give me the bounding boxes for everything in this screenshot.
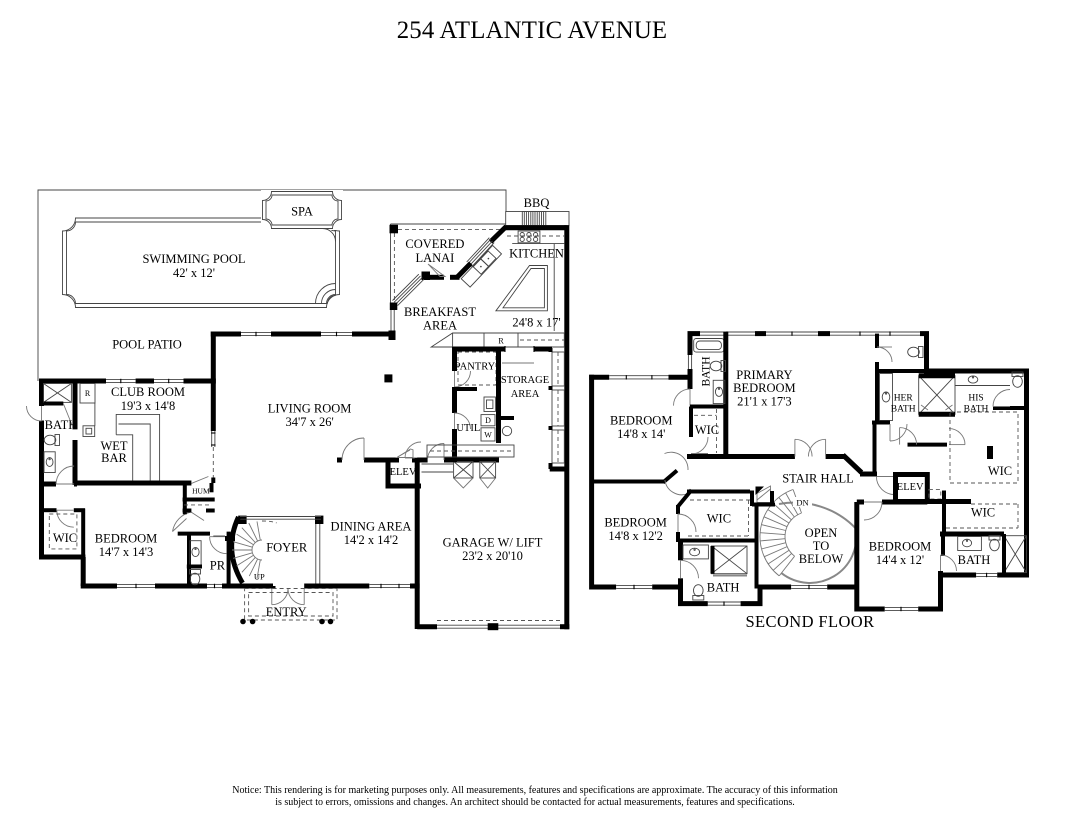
svg-text:BATH: BATH	[45, 418, 78, 432]
svg-text:CLUB ROOM: CLUB ROOM	[111, 385, 185, 399]
svg-text:BELOW: BELOW	[799, 552, 844, 566]
svg-text:PR: PR	[210, 559, 226, 573]
svg-text:is subject to errors, omission: is subject to errors, omissions and chan…	[275, 797, 795, 808]
svg-text:BREAKFAST: BREAKFAST	[404, 305, 476, 319]
svg-text:HER: HER	[894, 394, 914, 404]
svg-text:POOL PATIO: POOL PATIO	[112, 338, 182, 352]
svg-text:LIVING ROOM: LIVING ROOM	[268, 402, 352, 416]
svg-text:BEDROOM: BEDROOM	[869, 540, 932, 554]
svg-text:ENTRY: ENTRY	[266, 605, 307, 619]
svg-text:HUM: HUM	[192, 486, 210, 495]
svg-text:AREA: AREA	[423, 319, 457, 333]
svg-text:UTIL: UTIL	[456, 423, 480, 434]
svg-text:ELEV: ELEV	[897, 482, 924, 493]
svg-text:AREA: AREA	[511, 389, 540, 400]
svg-text:BATH: BATH	[891, 405, 916, 415]
svg-text:FOYER: FOYER	[266, 541, 308, 555]
svg-text:WIC: WIC	[971, 506, 995, 520]
svg-text:WIC: WIC	[988, 464, 1012, 478]
svg-text:Notice: This rendering is for: Notice: This rendering is for marketing …	[232, 785, 837, 796]
svg-text:BAR: BAR	[101, 451, 127, 465]
svg-text:SPA: SPA	[291, 205, 313, 219]
svg-text:WIC: WIC	[707, 511, 731, 525]
svg-text:BEDROOM: BEDROOM	[610, 414, 673, 428]
svg-text:ELEV: ELEV	[390, 467, 417, 478]
svg-text:TO: TO	[813, 539, 829, 553]
svg-text:BATH: BATH	[707, 581, 740, 595]
svg-text:BBQ: BBQ	[524, 196, 550, 210]
svg-text:23'2 x 20'10: 23'2 x 20'10	[462, 549, 523, 563]
svg-text:14'8 x 12'2: 14'8 x 12'2	[608, 529, 663, 543]
svg-text:DN: DN	[796, 498, 808, 508]
svg-text:BATH: BATH	[701, 356, 713, 386]
svg-text:34'7 x 26': 34'7 x 26'	[285, 415, 333, 429]
svg-text:WIC: WIC	[695, 423, 719, 437]
svg-text:STAIR HALL: STAIR HALL	[782, 472, 854, 486]
svg-text:PANTRY: PANTRY	[455, 362, 496, 373]
svg-text:42' x 12': 42' x 12'	[173, 266, 215, 280]
svg-text:D: D	[485, 416, 491, 425]
svg-text:WIC: WIC	[53, 531, 77, 545]
svg-text:BEDROOM: BEDROOM	[733, 381, 796, 395]
svg-text:PRIMARY: PRIMARY	[736, 368, 792, 382]
svg-text:14'8 x 14': 14'8 x 14'	[617, 427, 665, 441]
svg-text:14'2 x 14'2: 14'2 x 14'2	[344, 533, 399, 547]
svg-text:BEDROOM: BEDROOM	[95, 532, 158, 546]
svg-text:OPEN: OPEN	[805, 526, 838, 540]
svg-text:14'4 x 12': 14'4 x 12'	[876, 553, 924, 567]
svg-text:BEDROOM: BEDROOM	[604, 515, 667, 529]
svg-text:UP: UP	[254, 572, 265, 582]
svg-text:STORAGE: STORAGE	[501, 375, 549, 386]
svg-text:DINING AREA: DINING AREA	[331, 520, 412, 534]
svg-text:GARAGE W/ LIFT: GARAGE W/ LIFT	[443, 536, 543, 550]
svg-text:24'8 x 17': 24'8 x 17'	[512, 316, 560, 330]
svg-text:SWIMMING POOL: SWIMMING POOL	[142, 252, 245, 266]
svg-text:W: W	[484, 431, 492, 440]
svg-text:COVERED: COVERED	[405, 237, 464, 251]
svg-text:KITCHEN: KITCHEN	[509, 247, 564, 261]
svg-text:21'1 x 17'3: 21'1 x 17'3	[737, 395, 792, 409]
svg-text:14'7 x 14'3: 14'7 x 14'3	[99, 545, 154, 559]
svg-text:BATH: BATH	[964, 405, 989, 415]
svg-text:R: R	[85, 389, 91, 398]
svg-text:R: R	[498, 337, 504, 346]
svg-text:HIS: HIS	[968, 394, 983, 404]
svg-text:LANAI: LANAI	[415, 251, 454, 265]
svg-text:254 ATLANTIC AVENUE: 254 ATLANTIC AVENUE	[397, 17, 668, 44]
svg-text:19'3 x 14'8: 19'3 x 14'8	[121, 399, 176, 413]
svg-text:BATH: BATH	[958, 553, 991, 567]
svg-text:SECOND FLOOR: SECOND FLOOR	[745, 612, 874, 631]
